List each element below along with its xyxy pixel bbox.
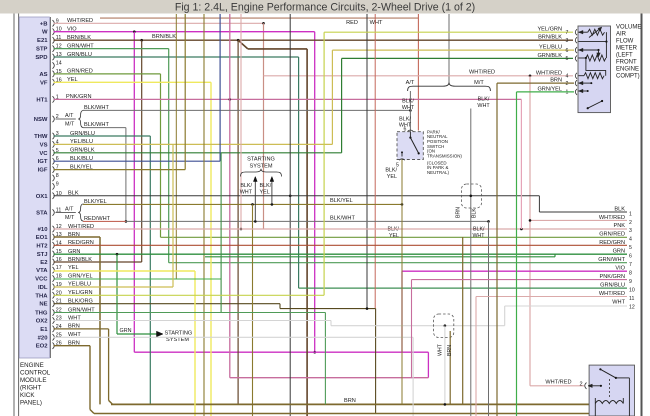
svg-text:7: 7 xyxy=(566,30,569,36)
svg-text:GRN/RED: GRN/RED xyxy=(599,232,625,238)
svg-text:THG: THG xyxy=(35,311,48,317)
svg-text:STP: STP xyxy=(36,47,48,53)
svg-text:BRN/BLK: BRN/BLK xyxy=(152,34,176,40)
svg-text:(LEFT: (LEFT xyxy=(616,53,633,59)
svg-text:12: 12 xyxy=(629,304,635,310)
svg-text:BLK: BLK xyxy=(614,206,625,212)
svg-text:YEL: YEL xyxy=(260,189,270,195)
svg-text:3: 3 xyxy=(629,228,632,234)
svg-text:5: 5 xyxy=(629,245,632,251)
svg-text:YEL/GRN: YEL/GRN xyxy=(537,27,562,33)
svg-text:GRN/WHT: GRN/WHT xyxy=(598,257,625,263)
svg-text:GRN/YEL: GRN/YEL xyxy=(68,273,93,279)
svg-text:STA: STA xyxy=(36,211,48,217)
svg-text:Fig 1: 2.4L, Engine Performanc: Fig 1: 2.4L, Engine Performance Circuits… xyxy=(175,1,475,13)
svg-text:A/T: A/T xyxy=(65,207,74,213)
svg-text:METER: METER xyxy=(616,46,638,52)
svg-text:M/T: M/T xyxy=(65,215,75,221)
svg-text:#10: #10 xyxy=(38,227,49,233)
svg-text:GRN/BLK: GRN/BLK xyxy=(537,53,562,59)
svg-text:10: 10 xyxy=(629,288,635,294)
svg-text:THW: THW xyxy=(34,134,48,140)
svg-text:IDL: IDL xyxy=(38,285,48,291)
svg-text:VIO: VIO xyxy=(615,266,625,272)
svg-text:E1: E1 xyxy=(40,327,48,333)
svg-text:THA: THA xyxy=(35,293,48,299)
svg-text:5: 5 xyxy=(566,56,569,62)
svg-text:+B: +B xyxy=(40,21,48,27)
svg-text:ENGINE: ENGINE xyxy=(616,67,639,73)
svg-text:M/T: M/T xyxy=(474,80,484,86)
svg-text:RED: RED xyxy=(346,20,358,26)
svg-text:IGT: IGT xyxy=(38,159,48,165)
svg-text:OX1: OX1 xyxy=(36,194,49,200)
svg-text:YEL: YEL xyxy=(389,233,399,239)
svg-text:WHT/RED: WHT/RED xyxy=(545,380,571,386)
svg-text:EO1: EO1 xyxy=(36,235,49,241)
svg-text:1: 1 xyxy=(629,211,632,217)
svg-text:PNK: PNK xyxy=(613,223,625,229)
svg-text:WHT/RED: WHT/RED xyxy=(469,69,495,75)
svg-text:WHT: WHT xyxy=(477,103,490,109)
svg-text:4: 4 xyxy=(566,74,569,80)
svg-text:RED/GRN: RED/GRN xyxy=(599,240,625,246)
svg-text:BLK/: BLK/ xyxy=(478,97,490,103)
svg-text:BLK: BLK xyxy=(472,208,478,218)
svg-text:2: 2 xyxy=(566,81,569,87)
svg-text:STJ: STJ xyxy=(37,252,48,258)
svg-text:M/T: M/T xyxy=(65,121,75,127)
svg-text:NEUTRAL): NEUTRAL) xyxy=(427,170,449,175)
svg-text:AS: AS xyxy=(39,72,47,78)
svg-text:AIR: AIR xyxy=(616,32,627,38)
svg-text:YEL/BLU: YEL/BLU xyxy=(539,45,562,51)
svg-text:STARTING: STARTING xyxy=(165,331,193,337)
svg-text:6: 6 xyxy=(629,254,632,260)
svg-text:3: 3 xyxy=(566,38,569,44)
svg-text:VS: VS xyxy=(40,142,48,148)
svg-text:SYSTEM: SYSTEM xyxy=(166,337,189,343)
svg-text:2: 2 xyxy=(580,382,583,388)
svg-text:9: 9 xyxy=(629,279,632,285)
svg-text:14: 14 xyxy=(56,61,62,67)
svg-text:TRANSMISSION): TRANSMISSION) xyxy=(427,153,462,158)
svg-text:4: 4 xyxy=(629,237,632,243)
svg-text:BRN: BRN xyxy=(447,345,453,356)
svg-text:GRN/BLU: GRN/BLU xyxy=(600,283,625,289)
svg-text:BLK/: BLK/ xyxy=(385,168,397,174)
svg-text:YEL: YEL xyxy=(387,174,397,180)
svg-text:8: 8 xyxy=(629,271,632,277)
svg-text:VF: VF xyxy=(40,80,48,86)
svg-text:SYSTEM: SYSTEM xyxy=(249,164,272,170)
svg-text:SPD: SPD xyxy=(35,55,47,61)
svg-text:11: 11 xyxy=(629,296,634,302)
svg-text:WHT: WHT xyxy=(612,299,625,305)
svg-text:6: 6 xyxy=(566,48,569,54)
svg-text:9: 9 xyxy=(56,181,59,187)
svg-text:7: 7 xyxy=(629,262,632,268)
svg-text:WHT: WHT xyxy=(370,20,383,26)
svg-text:KICK: KICK xyxy=(20,392,35,399)
svg-text:IGF: IGF xyxy=(38,168,48,174)
svg-text:COMPT): COMPT) xyxy=(616,74,640,80)
svg-text:BLK/YEL: BLK/YEL xyxy=(330,198,353,204)
svg-text:WHT/RED: WHT/RED xyxy=(536,70,562,76)
svg-text:GRN: GRN xyxy=(613,249,625,255)
svg-text:#20: #20 xyxy=(38,335,49,341)
svg-text:8: 8 xyxy=(56,173,59,179)
svg-text:W: W xyxy=(42,30,48,36)
svg-text:BRN/BLK: BRN/BLK xyxy=(538,35,562,41)
svg-text:FLOW: FLOW xyxy=(616,39,634,45)
svg-text:ENGINE: ENGINE xyxy=(20,362,44,369)
svg-text:HT2: HT2 xyxy=(36,243,48,249)
svg-text:EO2: EO2 xyxy=(36,344,49,350)
svg-text:OX2: OX2 xyxy=(36,319,49,325)
svg-text:MODULE: MODULE xyxy=(20,377,46,384)
svg-text:WHT: WHT xyxy=(472,233,485,239)
svg-text:WHT: WHT xyxy=(240,189,253,195)
svg-text:STARTING: STARTING xyxy=(247,157,275,163)
svg-text:FRONT: FRONT xyxy=(616,60,637,66)
svg-text:BLK/WHT: BLK/WHT xyxy=(330,216,355,222)
svg-text:E21: E21 xyxy=(37,38,48,44)
svg-text:YEL: YEL xyxy=(68,265,79,271)
svg-text:BLK/: BLK/ xyxy=(473,227,485,233)
svg-text:17: 17 xyxy=(56,265,62,271)
svg-text:BLK/: BLK/ xyxy=(402,99,414,105)
svg-text:BLK/: BLK/ xyxy=(240,183,252,189)
svg-text:A/T: A/T xyxy=(65,113,74,119)
svg-text:VCC: VCC xyxy=(35,277,48,283)
svg-text:PANEL): PANEL) xyxy=(20,400,42,407)
svg-text:BRN: BRN xyxy=(456,207,462,218)
svg-text:NE: NE xyxy=(39,302,47,308)
svg-text:(RIGHT: (RIGHT xyxy=(20,385,42,392)
svg-text:BRN: BRN xyxy=(344,398,356,404)
svg-text:GRN: GRN xyxy=(120,328,132,334)
svg-text:A/T: A/T xyxy=(406,80,415,86)
svg-text:VOLUME: VOLUME xyxy=(616,25,641,31)
svg-text:E2: E2 xyxy=(40,260,48,266)
svg-text:CONTROL: CONTROL xyxy=(20,370,51,377)
svg-text:VTA: VTA xyxy=(36,268,48,274)
svg-text:NSW: NSW xyxy=(34,117,48,123)
svg-text:BLK/: BLK/ xyxy=(260,183,272,189)
svg-text:HT1: HT1 xyxy=(36,97,48,103)
svg-text:1: 1 xyxy=(566,90,569,96)
svg-text:WHT: WHT xyxy=(402,105,415,111)
svg-text:WHT: WHT xyxy=(438,343,444,356)
svg-text:2: 2 xyxy=(629,220,632,226)
svg-text:BLK/: BLK/ xyxy=(399,116,411,122)
svg-text:VC: VC xyxy=(39,151,48,157)
